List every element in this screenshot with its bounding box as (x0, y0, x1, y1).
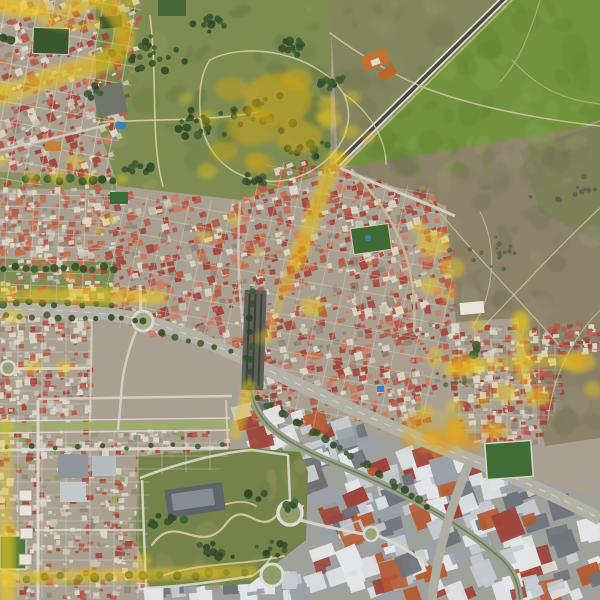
tree (314, 429, 321, 436)
tree (80, 265, 88, 273)
building (72, 386, 78, 393)
building (554, 335, 557, 338)
tree (254, 395, 260, 401)
building (3, 223, 9, 228)
tree (157, 56, 163, 62)
building (97, 542, 101, 547)
highlight-blob-overlay (569, 355, 587, 367)
building (47, 499, 52, 502)
tree (576, 186, 579, 189)
building (13, 373, 17, 376)
building (46, 564, 52, 568)
building (46, 592, 52, 598)
building (171, 194, 179, 202)
building (576, 345, 580, 347)
highlight-blob-overlay (25, 171, 41, 183)
tree (593, 188, 597, 192)
highlight-blob-overlay (210, 140, 238, 162)
tree (0, 266, 6, 272)
tree (276, 540, 283, 547)
tree (579, 189, 584, 194)
building (575, 326, 581, 331)
building (464, 338, 470, 345)
building (19, 344, 24, 348)
building (67, 596, 70, 600)
building (87, 240, 93, 245)
building (75, 535, 82, 539)
building (32, 508, 35, 510)
tree (327, 86, 333, 92)
tree (391, 483, 398, 490)
building (195, 306, 199, 311)
tree (344, 451, 349, 456)
tree (249, 300, 256, 307)
highlight-blob-overlay (417, 404, 433, 416)
tree (137, 163, 143, 169)
building (89, 199, 96, 203)
building (97, 487, 101, 491)
landmark-building (60, 482, 86, 502)
building (78, 372, 83, 376)
tree (66, 174, 75, 183)
building (148, 588, 163, 600)
landmark-building (158, 0, 186, 16)
tree (268, 546, 273, 551)
building (34, 317, 40, 322)
building (310, 285, 315, 290)
building (44, 567, 49, 571)
tree (573, 192, 578, 197)
highlight-blob-overlay (341, 125, 359, 139)
building (128, 243, 133, 246)
building (38, 254, 42, 257)
highlight-blob-overlay (83, 172, 97, 182)
building (547, 423, 552, 425)
building (162, 195, 167, 199)
building (20, 195, 25, 199)
building (38, 222, 42, 226)
highlight-blob-overlay (411, 221, 427, 235)
tree (496, 248, 498, 250)
building (74, 590, 79, 595)
tree (330, 442, 337, 449)
building (26, 453, 33, 460)
building (85, 217, 91, 224)
building (525, 406, 528, 409)
building (77, 242, 81, 245)
building (58, 236, 64, 242)
building (540, 420, 548, 424)
tree (256, 177, 263, 184)
tree (137, 54, 143, 60)
building (79, 202, 85, 205)
highlight-blob-overlay (510, 314, 530, 330)
building (18, 220, 22, 223)
building (80, 593, 86, 600)
tree (247, 369, 253, 375)
building (120, 552, 125, 556)
landmark-building (19, 505, 32, 516)
tree (75, 444, 81, 450)
building (281, 181, 284, 184)
tree (181, 132, 189, 140)
highlight-blob-overlay (243, 152, 267, 168)
building (89, 185, 94, 188)
building (56, 548, 60, 551)
tree (110, 266, 118, 274)
tree (50, 264, 58, 272)
tree (175, 125, 183, 133)
building (100, 589, 103, 592)
highlight-blob-overlay (66, 154, 84, 168)
building (71, 335, 76, 339)
tree (29, 443, 35, 449)
building (192, 197, 197, 202)
highlight-blob-overlay (198, 111, 216, 125)
tree (71, 263, 79, 271)
tree (179, 119, 184, 124)
tree (263, 550, 269, 556)
building (107, 594, 111, 598)
tree (246, 314, 253, 321)
building (120, 477, 125, 482)
building (83, 353, 88, 358)
tree (156, 513, 162, 519)
highlight-blob-overlay (49, 171, 67, 183)
building (129, 472, 135, 477)
tree (186, 118, 190, 122)
building (540, 376, 544, 381)
building (100, 479, 106, 483)
building (534, 346, 539, 351)
building (34, 201, 38, 205)
tree (228, 349, 233, 354)
tree (188, 107, 195, 114)
building (25, 596, 29, 599)
building (196, 587, 205, 596)
highlight-blob-overlay (55, 360, 73, 374)
tree (204, 124, 211, 131)
building (39, 408, 46, 414)
building (22, 405, 27, 410)
tree (158, 329, 165, 336)
building (568, 335, 574, 340)
highlight-blob-overlay (227, 108, 277, 146)
building (18, 276, 23, 280)
highlight-blob-overlay (215, 77, 247, 101)
building (67, 230, 73, 237)
highlight-blob-overlay (103, 214, 117, 224)
building (426, 305, 431, 309)
building (2, 348, 5, 352)
building (11, 347, 17, 351)
building (537, 433, 544, 437)
highlight-blob-overlay (226, 213, 242, 225)
building (123, 225, 127, 229)
building (85, 281, 91, 285)
building (94, 284, 99, 287)
tree (43, 312, 50, 319)
building (48, 236, 54, 241)
building (77, 237, 80, 240)
tree (415, 495, 423, 503)
building (498, 409, 502, 413)
building (75, 551, 79, 553)
tree (207, 21, 215, 29)
tree (124, 446, 129, 451)
building (150, 434, 155, 437)
building (50, 215, 57, 220)
building (283, 206, 291, 214)
tree (513, 251, 517, 255)
highlight-blob-overlay (469, 318, 485, 332)
tree (503, 251, 507, 255)
building (11, 220, 17, 224)
landmark-building (350, 223, 391, 254)
building (529, 426, 535, 431)
building (24, 352, 29, 358)
building (473, 376, 480, 383)
building (81, 515, 87, 521)
building (15, 379, 22, 387)
building (455, 341, 461, 346)
building (243, 279, 247, 284)
building (9, 207, 13, 211)
highlight-blob-overlay (197, 163, 217, 179)
tree (471, 258, 475, 262)
tree (108, 314, 115, 321)
tree (490, 265, 493, 268)
building (30, 250, 37, 257)
building (9, 332, 16, 337)
building (296, 587, 311, 599)
building (5, 385, 10, 389)
tree (250, 288, 256, 294)
tree (138, 64, 145, 71)
tree (508, 244, 512, 248)
tree (98, 175, 107, 184)
building (288, 397, 292, 401)
building (71, 410, 77, 415)
tree (321, 435, 329, 443)
highlight-blob-overlay (458, 433, 482, 451)
building (58, 248, 64, 253)
tree (247, 329, 253, 335)
building (496, 348, 503, 352)
tree (22, 265, 29, 272)
building (106, 504, 110, 507)
building (281, 235, 286, 240)
building (134, 543, 138, 547)
building (597, 333, 600, 337)
building (62, 334, 66, 338)
building (218, 326, 225, 334)
building (561, 326, 567, 331)
building (19, 324, 25, 331)
building (64, 251, 71, 256)
building (6, 380, 11, 385)
tree (479, 251, 483, 255)
building (47, 551, 51, 554)
tree (294, 51, 300, 57)
building (1, 321, 5, 325)
tree (100, 443, 105, 448)
building (33, 346, 37, 349)
tree (145, 168, 149, 172)
landmark-building (110, 192, 128, 204)
building (0, 246, 3, 250)
building (26, 260, 31, 264)
building (104, 489, 107, 492)
tree (94, 89, 99, 94)
tree (181, 58, 187, 64)
building (587, 329, 593, 335)
building (390, 399, 398, 407)
building (108, 439, 113, 442)
tree (501, 267, 506, 272)
building (15, 278, 19, 282)
building (545, 347, 548, 351)
tree (194, 118, 199, 123)
tree (497, 251, 502, 256)
building (495, 416, 502, 423)
highlight-blob-overlay (201, 566, 219, 578)
highlight-blob-overlay (276, 120, 322, 154)
tree (43, 266, 50, 273)
building (19, 590, 26, 595)
landmark-building (33, 27, 70, 54)
tree (214, 15, 221, 22)
tree (244, 489, 252, 497)
road (0, 448, 228, 450)
building (397, 397, 404, 403)
building (54, 452, 58, 455)
building (104, 200, 111, 206)
tree (324, 142, 331, 149)
tree (88, 95, 94, 101)
satellite-imagery (0, 0, 600, 600)
highlight-blob-overlay (317, 96, 337, 112)
building (45, 438, 48, 440)
building (91, 433, 98, 437)
tree (89, 267, 95, 273)
landmark-building (460, 301, 485, 315)
building (95, 553, 102, 559)
building (71, 358, 75, 361)
building (115, 551, 120, 556)
tree (30, 265, 38, 273)
building (510, 417, 514, 420)
building (0, 409, 5, 414)
highlight-blob-overlay (361, 132, 375, 142)
tree (207, 29, 211, 33)
building (79, 278, 85, 281)
building (71, 188, 77, 191)
highlight-blob-overlay (80, 568, 100, 580)
building (119, 556, 122, 560)
tree (248, 343, 255, 350)
highlight-blob-overlay (93, 227, 105, 235)
highlight-blob-overlay (253, 331, 273, 345)
building (97, 255, 101, 258)
highlight-blob-overlay (493, 383, 517, 403)
highlight-blob-overlay (198, 230, 214, 242)
building (507, 327, 513, 330)
building (85, 184, 90, 189)
tree (12, 263, 19, 270)
building (96, 562, 100, 566)
tree (468, 247, 473, 252)
building (124, 433, 129, 436)
building (95, 281, 100, 284)
building (288, 181, 294, 187)
building (0, 186, 3, 189)
building (41, 214, 46, 217)
building (544, 372, 552, 378)
building (82, 330, 87, 335)
building (400, 349, 405, 353)
tree (182, 124, 189, 131)
building (46, 495, 50, 498)
building (47, 434, 51, 438)
building (18, 235, 24, 242)
highlight-blob-overlay (24, 288, 56, 304)
building (453, 335, 459, 339)
highlight-blob-overlay (128, 289, 168, 305)
building (544, 336, 549, 340)
building (43, 208, 47, 212)
tree (318, 78, 326, 86)
building (62, 229, 66, 232)
highlight-blob-overlay (439, 289, 455, 301)
tree (100, 262, 108, 270)
highlight-blob-overlay (2, 308, 24, 324)
tree (586, 188, 591, 193)
tree (335, 76, 341, 82)
highlight-blob-overlay (333, 151, 351, 165)
tree (55, 315, 62, 322)
tree (507, 249, 512, 254)
building (60, 253, 64, 256)
building (105, 500, 108, 503)
building (6, 394, 11, 399)
tree (152, 51, 156, 55)
satellite-map-viewport[interactable] (0, 0, 600, 600)
building (22, 474, 28, 479)
building (40, 196, 46, 203)
tree (275, 553, 280, 558)
building (54, 535, 60, 539)
highlight-blob-overlay (419, 277, 441, 295)
building (69, 378, 74, 382)
tree (203, 549, 210, 556)
building (510, 348, 514, 351)
highlight-blob-overlay (436, 438, 454, 452)
highlight-blob-overlay (301, 297, 325, 317)
tree (68, 315, 75, 322)
tree (171, 442, 175, 446)
building (72, 200, 76, 203)
building (38, 240, 44, 245)
building (43, 332, 47, 335)
tree (472, 341, 481, 350)
building (296, 306, 300, 310)
building (498, 345, 503, 349)
building (18, 330, 24, 335)
building (29, 332, 35, 339)
tree (218, 111, 223, 116)
building (40, 499, 47, 507)
